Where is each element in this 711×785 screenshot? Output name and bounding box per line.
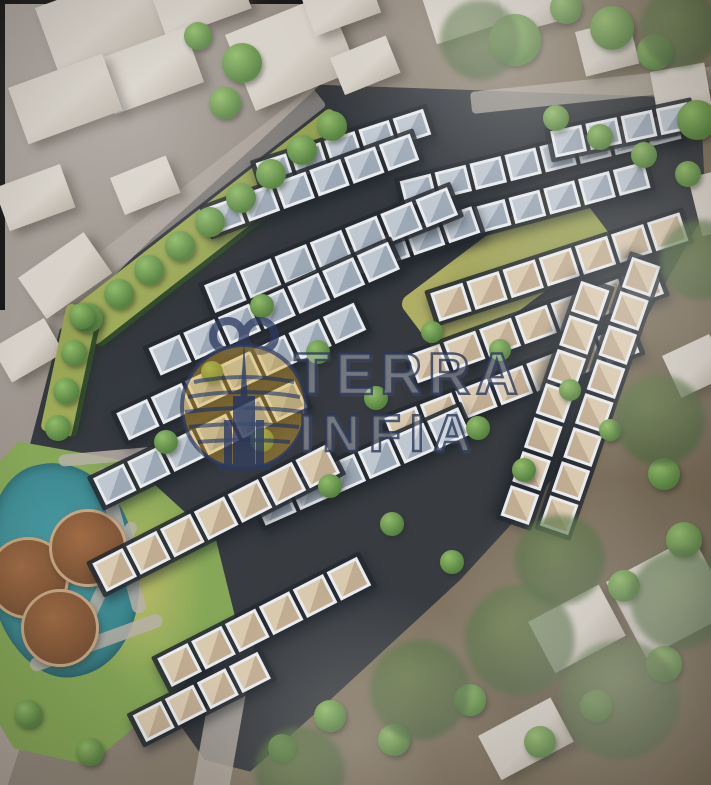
house-roof bbox=[263, 595, 300, 631]
tree bbox=[287, 135, 317, 165]
tree bbox=[226, 183, 256, 213]
watermark-brand-line1: TERRA bbox=[294, 346, 524, 404]
villa-house bbox=[309, 159, 350, 197]
watermark-brand-line2: INFIA bbox=[299, 408, 480, 460]
tree bbox=[524, 726, 556, 758]
villa-house bbox=[508, 190, 546, 224]
villa-house bbox=[379, 134, 420, 172]
house-roof bbox=[575, 285, 606, 317]
house-roof bbox=[120, 403, 156, 437]
villa-house bbox=[380, 201, 423, 242]
villa-house bbox=[622, 257, 661, 297]
tree bbox=[314, 700, 346, 732]
watermark: TERRA INFIA bbox=[168, 312, 568, 477]
villa-house bbox=[415, 187, 458, 228]
house-roof bbox=[616, 165, 647, 192]
house-roof bbox=[506, 263, 540, 294]
villa-house bbox=[621, 110, 658, 143]
tree-canopy-cluster bbox=[370, 640, 470, 740]
villa-house bbox=[575, 236, 617, 275]
villa-house bbox=[610, 291, 649, 331]
tree bbox=[256, 159, 286, 189]
tree bbox=[165, 231, 195, 261]
house-roof bbox=[348, 150, 381, 180]
tree bbox=[195, 207, 225, 237]
house-roof bbox=[201, 672, 235, 705]
tree bbox=[380, 512, 404, 536]
tree bbox=[590, 6, 634, 50]
tree bbox=[677, 100, 711, 140]
house-roof bbox=[626, 261, 657, 293]
villa-house bbox=[543, 180, 581, 214]
tree bbox=[587, 124, 613, 150]
house-roof bbox=[590, 363, 621, 395]
villa-house bbox=[469, 156, 507, 190]
house-roof bbox=[504, 489, 535, 521]
circular-court bbox=[21, 589, 99, 667]
tree bbox=[543, 105, 569, 131]
house-roof bbox=[130, 535, 167, 571]
tree bbox=[440, 550, 464, 574]
context-building bbox=[0, 164, 76, 231]
house-roof bbox=[419, 191, 454, 224]
tree bbox=[53, 378, 79, 404]
house-roof bbox=[542, 251, 576, 282]
villa-house bbox=[598, 325, 637, 365]
tree bbox=[631, 142, 657, 168]
villa-house bbox=[578, 171, 616, 205]
context-building bbox=[8, 54, 122, 145]
villa-house bbox=[357, 242, 400, 283]
tree-canopy-cluster bbox=[255, 727, 345, 785]
house-roof bbox=[297, 578, 334, 614]
house-roof bbox=[602, 329, 633, 361]
tree-canopy-cluster bbox=[615, 375, 705, 465]
house-roof bbox=[291, 277, 326, 310]
house-roof bbox=[198, 500, 235, 536]
house-roof bbox=[331, 561, 368, 597]
house-roof bbox=[578, 239, 612, 270]
villa-house bbox=[500, 485, 539, 525]
house-roof bbox=[470, 275, 504, 306]
house-roof bbox=[195, 630, 232, 666]
house-roof bbox=[383, 137, 416, 167]
house-roof bbox=[326, 261, 361, 294]
house-roof bbox=[169, 689, 203, 722]
tree-canopy-cluster bbox=[440, 0, 520, 80]
house-roof bbox=[233, 656, 267, 689]
house-roof bbox=[567, 431, 598, 463]
villa-house bbox=[287, 273, 330, 314]
villa-house bbox=[539, 247, 581, 286]
villa-house bbox=[344, 146, 385, 184]
house-roof bbox=[97, 467, 133, 501]
tree-canopy-cluster bbox=[560, 640, 680, 760]
tree bbox=[184, 22, 212, 50]
house-roof bbox=[473, 160, 503, 187]
tree bbox=[318, 474, 342, 498]
villa-house bbox=[563, 427, 602, 467]
house-roof bbox=[508, 151, 538, 178]
tree bbox=[14, 700, 42, 728]
house-roof bbox=[313, 163, 346, 193]
house-roof bbox=[96, 552, 133, 588]
house-roof bbox=[137, 705, 171, 738]
house-roof bbox=[164, 518, 201, 554]
house-roof bbox=[582, 175, 613, 202]
villa-house bbox=[502, 259, 544, 298]
tree bbox=[222, 43, 262, 83]
tree bbox=[134, 255, 164, 285]
tree-canopy-cluster bbox=[515, 515, 605, 605]
tree bbox=[76, 738, 104, 766]
villa-house bbox=[322, 257, 365, 298]
tree bbox=[209, 87, 241, 119]
house-roof bbox=[161, 647, 198, 683]
image-edge-artifact bbox=[0, 0, 5, 310]
villa-house bbox=[466, 271, 508, 310]
house-roof bbox=[512, 193, 543, 220]
villa-house bbox=[504, 147, 542, 181]
house-roof bbox=[232, 483, 269, 519]
house-roof bbox=[229, 613, 266, 649]
tree bbox=[69, 303, 95, 329]
villa-house bbox=[571, 281, 610, 321]
house-roof bbox=[614, 295, 645, 327]
villa-house bbox=[587, 359, 626, 399]
tree bbox=[317, 111, 347, 141]
aerial-render-image: TERRA INFIA bbox=[0, 0, 711, 785]
tree bbox=[104, 279, 134, 309]
villa-house bbox=[116, 399, 159, 441]
house-roof bbox=[131, 451, 167, 485]
house-roof bbox=[547, 184, 578, 211]
tree bbox=[675, 161, 701, 187]
tree bbox=[45, 415, 71, 441]
house-roof bbox=[384, 205, 419, 238]
house-roof bbox=[554, 128, 584, 154]
house-roof bbox=[361, 246, 396, 279]
house-roof bbox=[624, 113, 654, 139]
